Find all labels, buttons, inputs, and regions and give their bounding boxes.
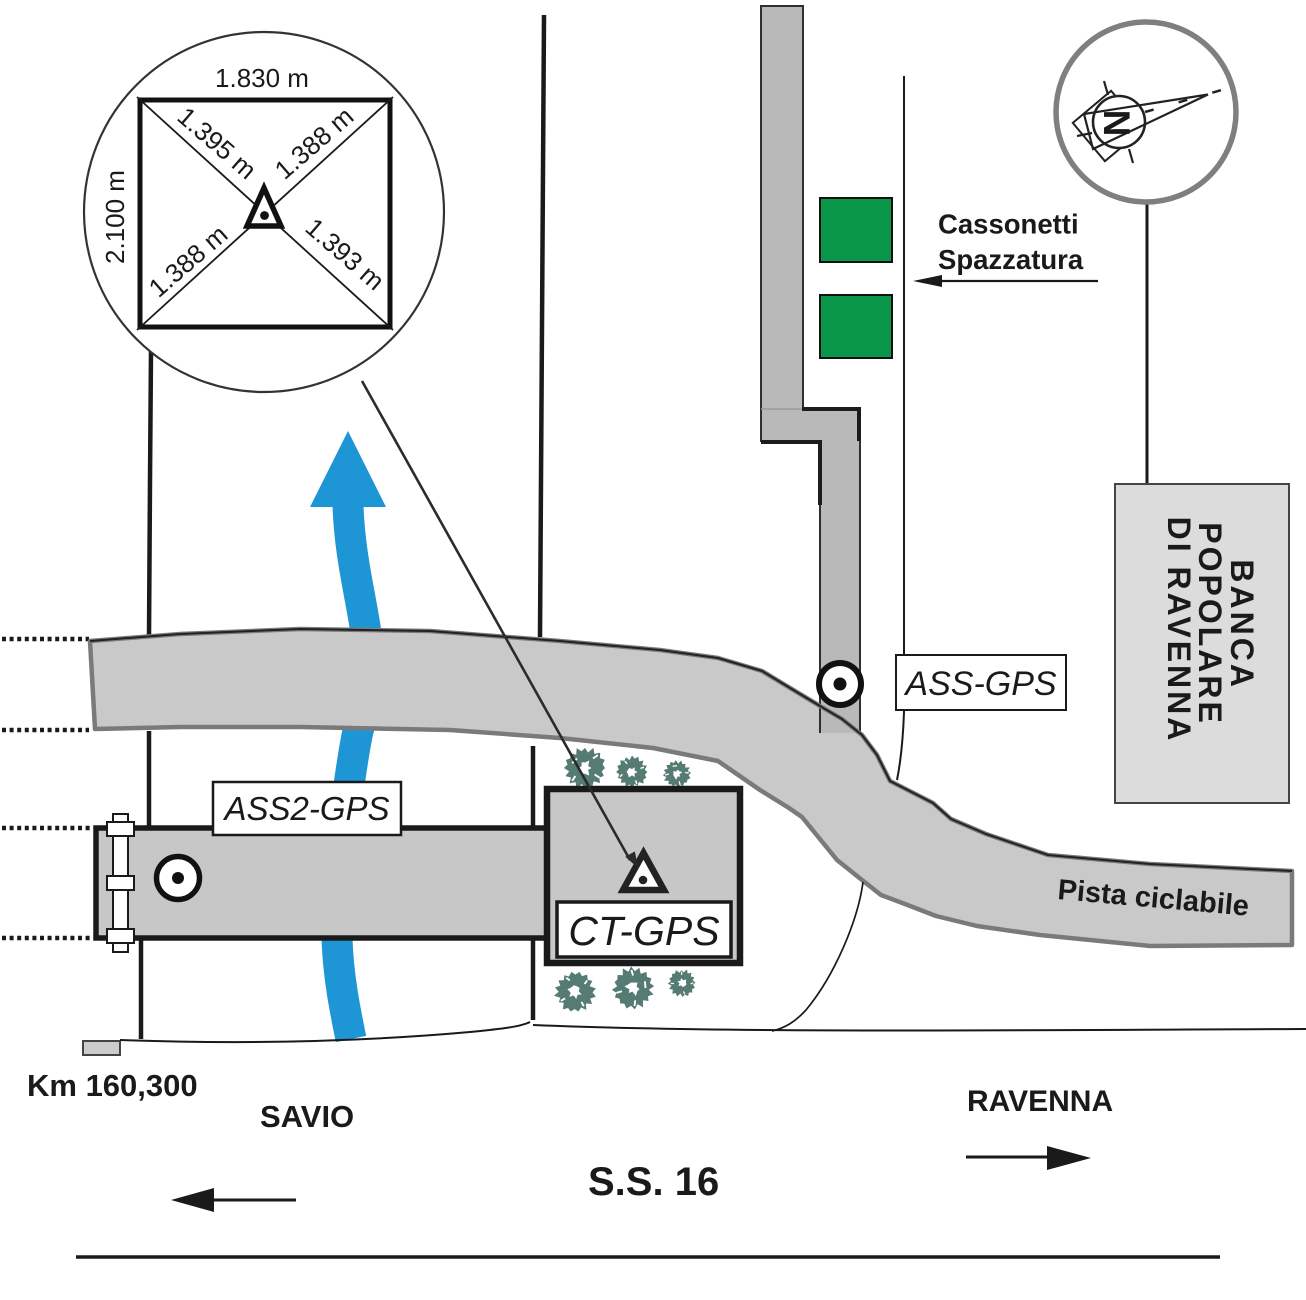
svg-text:CT-GPS: CT-GPS	[568, 908, 719, 954]
svg-text:SAVIO: SAVIO	[260, 1099, 354, 1134]
svg-text:ASS-GPS: ASS-GPS	[903, 665, 1056, 703]
svg-text:Cassonetti: Cassonetti	[938, 209, 1079, 240]
svg-text:ASS2-GPS: ASS2-GPS	[222, 790, 389, 827]
svg-text:Spazzatura: Spazzatura	[938, 244, 1084, 275]
svg-text:RAVENNA: RAVENNA	[967, 1085, 1113, 1118]
svg-text:N: N	[1096, 110, 1137, 137]
svg-text:1.830 m: 1.830 m	[215, 63, 309, 93]
svg-text:Km 160,300: Km 160,300	[27, 1068, 198, 1103]
svg-text:2.100 m: 2.100 m	[100, 170, 130, 264]
svg-text:S.S. 16: S.S. 16	[588, 1160, 719, 1204]
